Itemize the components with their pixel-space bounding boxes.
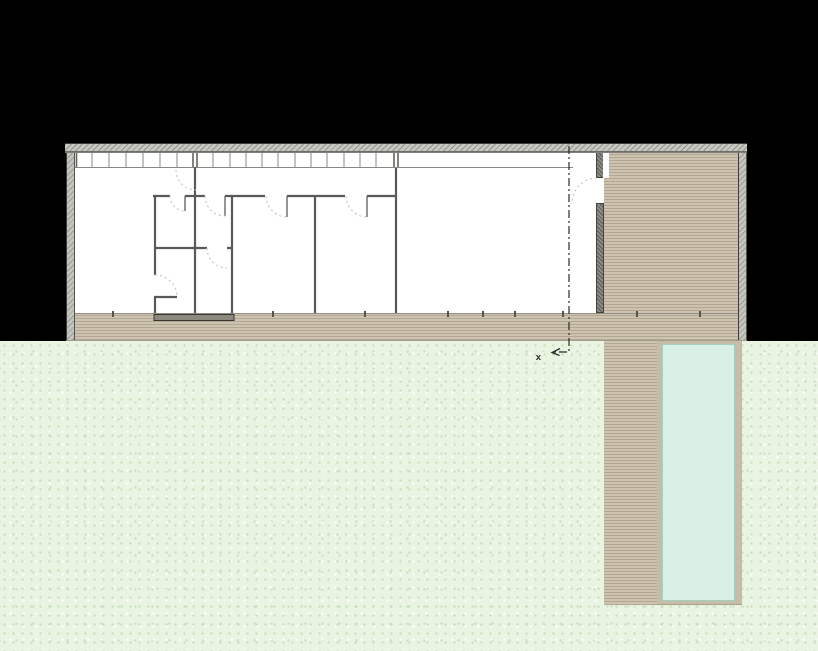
window-mullions xyxy=(77,153,399,167)
interior-walls xyxy=(153,167,397,313)
door-swing-arcs xyxy=(155,170,597,297)
edge-lines xyxy=(65,153,747,341)
plan-linework: x xyxy=(0,0,818,651)
section-line xyxy=(553,146,569,352)
door-arc xyxy=(155,275,177,297)
door-arc xyxy=(346,196,367,217)
door-arc xyxy=(170,196,185,211)
section-label: x xyxy=(536,352,542,363)
door-arc xyxy=(205,196,225,216)
door-arc xyxy=(207,248,227,268)
threshold-step xyxy=(154,315,234,321)
double-mullions xyxy=(77,153,399,167)
section-marker: x xyxy=(536,146,569,363)
door-arc xyxy=(572,178,597,203)
door-arc xyxy=(266,196,287,217)
floor-plan-scene: x xyxy=(0,0,818,651)
door-arc xyxy=(176,170,196,190)
